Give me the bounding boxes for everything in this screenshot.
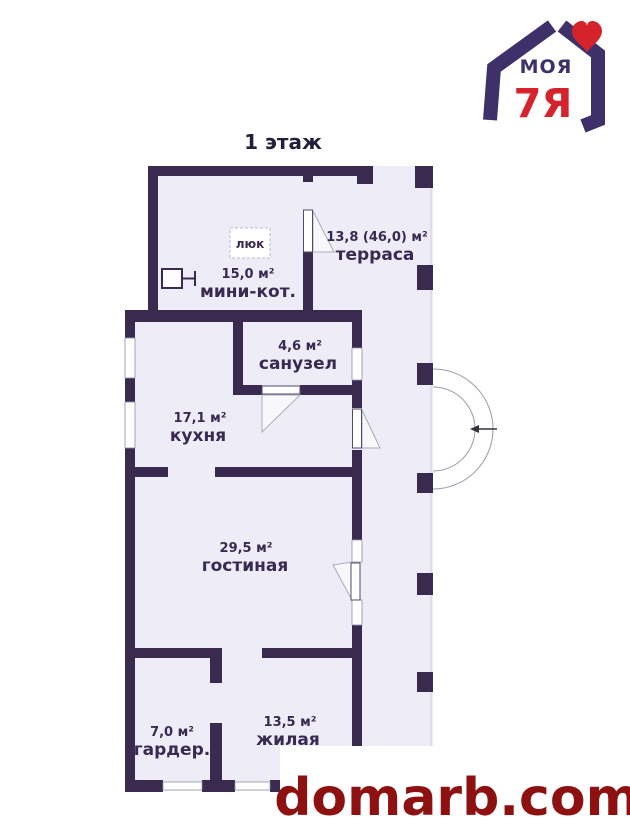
living-name: гостиная bbox=[202, 556, 289, 576]
agency-logo: МОЯ 7Я bbox=[490, 21, 602, 127]
bedroom-area: 13,5 м² bbox=[264, 715, 317, 730]
terrace-name: терраса bbox=[336, 245, 415, 265]
kitchen-area: 17,1 м² bbox=[174, 411, 227, 426]
hatch-label: люк bbox=[236, 237, 265, 251]
wardrobe-area: 7,0 м² bbox=[150, 725, 194, 740]
wardrobe-window bbox=[163, 782, 202, 790]
bathroom-name: санузел bbox=[259, 354, 337, 374]
floor-plan: люк 15,0 м² мини-кот. 13,8 (46,0) м² тер… bbox=[0, 0, 630, 827]
bathroom-area: 4,6 м² bbox=[278, 339, 322, 354]
watermark: domarb.com bbox=[274, 746, 630, 827]
kitchen-name: кухня bbox=[170, 426, 226, 446]
logo-word-top: МОЯ bbox=[520, 56, 573, 78]
kitchen-window-1 bbox=[125, 338, 135, 378]
page-title: 1 этаж bbox=[244, 130, 322, 154]
boiler-room-name: мини-кот. bbox=[200, 282, 296, 302]
watermark-text: domarb.com bbox=[274, 768, 630, 827]
floor-plan-page: люк 15,0 м² мини-кот. 13,8 (46,0) м² тер… bbox=[0, 0, 630, 827]
wardrobe-name: гардер. bbox=[134, 740, 210, 760]
living-terrace-door bbox=[351, 563, 360, 600]
entrance bbox=[433, 369, 497, 489]
terrace-area: 13,8 (46,0) м² bbox=[326, 230, 427, 245]
logo-word-bottom: 7Я bbox=[514, 81, 573, 127]
boiler-room-area: 15,0 м² bbox=[222, 267, 275, 282]
bathroom-window bbox=[352, 348, 362, 380]
living-side-window-bottom bbox=[352, 600, 362, 625]
bedroom-window bbox=[235, 782, 270, 790]
kitchen-terrace-door bbox=[353, 409, 362, 448]
bathroom-door bbox=[262, 386, 300, 394]
living-area: 29,5 м² bbox=[220, 541, 273, 556]
living-side-window-top bbox=[352, 540, 362, 562]
boiler-terrace-door bbox=[304, 210, 313, 252]
kitchen-window-2 bbox=[125, 402, 135, 448]
entrance-steps-inner-arc bbox=[433, 387, 475, 471]
